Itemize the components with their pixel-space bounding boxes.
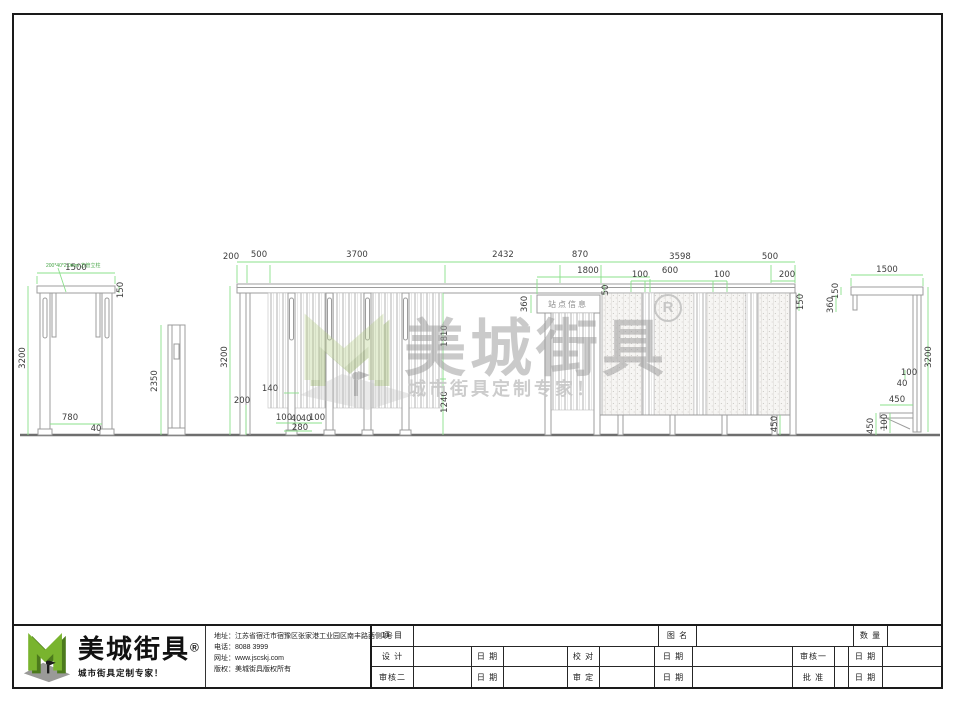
value-date xyxy=(504,647,568,667)
dim-post-height: 2350 xyxy=(150,370,160,392)
dim-main-1240: 1240 xyxy=(440,391,450,413)
dim-main-slot: 140 xyxy=(262,384,278,394)
value-date xyxy=(504,667,568,687)
elevation-drawing: 1500 150 3200 780 40 200*40*2.0mm 方管立柱 2… xyxy=(0,0,960,704)
dim-left-height: 3200 xyxy=(18,347,28,369)
value-check xyxy=(600,647,655,667)
dim-main-1810: 1810 xyxy=(440,325,450,347)
field-date: 日 期 xyxy=(849,647,883,667)
value-quantity xyxy=(888,626,941,646)
dim-main-600: 600 xyxy=(662,266,678,276)
material-note: 200*40*2.0mm 方管立柱 xyxy=(46,262,100,269)
dim-side-width: 1500 xyxy=(876,265,898,275)
dim-left-cap: 150 xyxy=(116,282,126,298)
title-block-table: 项 目 图 名 数 量 设 计 日 期 校 对 日 期 审核一 日 期 审核二 … xyxy=(372,626,941,687)
dim-main-3700: 3700 xyxy=(346,250,368,260)
company-address: 地址：江苏省宿迁市宿豫区张家港工业园区南丰路西侧1号 xyxy=(214,631,366,642)
company-copyright: 版权：美城街具版权所有 xyxy=(214,664,366,675)
value-project xyxy=(414,626,659,646)
field-approve: 审 定 xyxy=(568,667,600,687)
dim-main-1800: 1800 xyxy=(577,266,599,276)
value-date xyxy=(883,647,941,667)
value-drawing-name xyxy=(697,626,854,646)
dim-side-drop: 360 xyxy=(826,297,836,313)
field-design: 设 计 xyxy=(372,647,414,667)
dim-main-100b: 100 xyxy=(714,270,730,280)
dim-main-2432: 2432 xyxy=(492,250,514,260)
field-quantity: 数 量 xyxy=(854,626,888,646)
value-approve xyxy=(600,667,655,687)
title-block-slogan: 城市街具定制专家！ xyxy=(78,667,199,679)
dim-left-inner: 780 xyxy=(62,413,78,423)
company-info: 地址：江苏省宿迁市宿豫区张家港工业园区南丰路西侧1号 电话：8088 3999 … xyxy=(206,626,372,687)
table-row: 审核二 日 期 审 定 日 期 批 准 日 期 xyxy=(372,667,941,687)
main-elevation: 站点信息 200 500 3700 2432 870 3598 xyxy=(220,250,806,435)
value-review2 xyxy=(414,667,472,687)
title-block-brand: 美城街具 xyxy=(78,634,190,664)
dim-side-40: 40 xyxy=(897,379,908,389)
dim-main-500b: 500 xyxy=(762,252,778,262)
field-review1: 审核一 xyxy=(793,647,835,667)
side-view: 1500 150 360 3200 100 40 450 100 450 xyxy=(826,265,934,435)
dim-main-b280: 280 xyxy=(292,423,308,433)
value-review1 xyxy=(835,647,849,667)
field-drawing-name: 图 名 xyxy=(659,626,697,646)
field-date: 日 期 xyxy=(849,667,883,687)
company-phone: 电话：8088 3999 xyxy=(214,642,366,653)
field-check: 校 对 xyxy=(568,647,600,667)
title-block: 美城街具® 城市街具定制专家！ 地址：江苏省宿迁市宿豫区张家港工业园区南丰路西侧… xyxy=(12,624,943,689)
dim-main-b100b: 100 xyxy=(309,413,325,423)
value-date xyxy=(693,647,793,667)
registered-mark-icon: ® xyxy=(190,641,199,655)
dim-main-100a: 100 xyxy=(632,270,648,280)
field-review2: 审核二 xyxy=(372,667,414,687)
dim-main-sign50: 50 xyxy=(601,285,611,296)
dim-side-450b: 450 xyxy=(866,418,876,434)
table-row: 项 目 图 名 数 量 xyxy=(372,626,941,647)
value-design xyxy=(414,647,472,667)
field-project: 项 目 xyxy=(372,626,414,646)
value-ratify xyxy=(835,667,849,687)
dim-main-200a: 200 xyxy=(223,252,239,262)
company-website: 网址：www.jscskj.com xyxy=(214,653,366,664)
dim-main-foot450: 450 xyxy=(770,416,780,432)
dim-side-100b: 100 xyxy=(880,414,890,430)
dim-main-height: 3200 xyxy=(220,346,230,368)
dim-main-200b: 200 xyxy=(779,270,795,280)
dim-main-plinth: 200 xyxy=(234,396,250,406)
dim-main-roof150: 150 xyxy=(796,294,806,310)
value-date xyxy=(883,667,941,687)
field-date: 日 期 xyxy=(655,667,693,687)
dim-left-post: 40 xyxy=(91,424,102,434)
dim-side-100a: 100 xyxy=(901,368,917,378)
sign-post-view: 2350 xyxy=(150,325,185,435)
brand-logo-icon xyxy=(20,630,74,684)
field-date: 日 期 xyxy=(472,667,504,687)
field-date: 日 期 xyxy=(655,647,693,667)
dim-main-500a: 500 xyxy=(251,250,267,260)
field-date: 日 期 xyxy=(472,647,504,667)
field-ratify: 批 准 xyxy=(793,667,835,687)
dim-side-height: 3200 xyxy=(924,346,934,368)
title-block-logo-section: 美城街具® 城市街具定制专家！ xyxy=(14,626,206,687)
table-row: 设 计 日 期 校 对 日 期 审核一 日 期 xyxy=(372,647,941,668)
dim-side-450a: 450 xyxy=(889,395,905,405)
dim-main-3598: 3598 xyxy=(669,252,691,262)
value-date xyxy=(693,667,793,687)
dim-main-sign360: 360 xyxy=(520,296,530,312)
station-sign-label: 站点信息 xyxy=(548,299,588,309)
dim-main-870: 870 xyxy=(572,250,588,260)
left-end-view: 1500 150 3200 780 40 200*40*2.0mm 方管立柱 xyxy=(18,262,126,435)
